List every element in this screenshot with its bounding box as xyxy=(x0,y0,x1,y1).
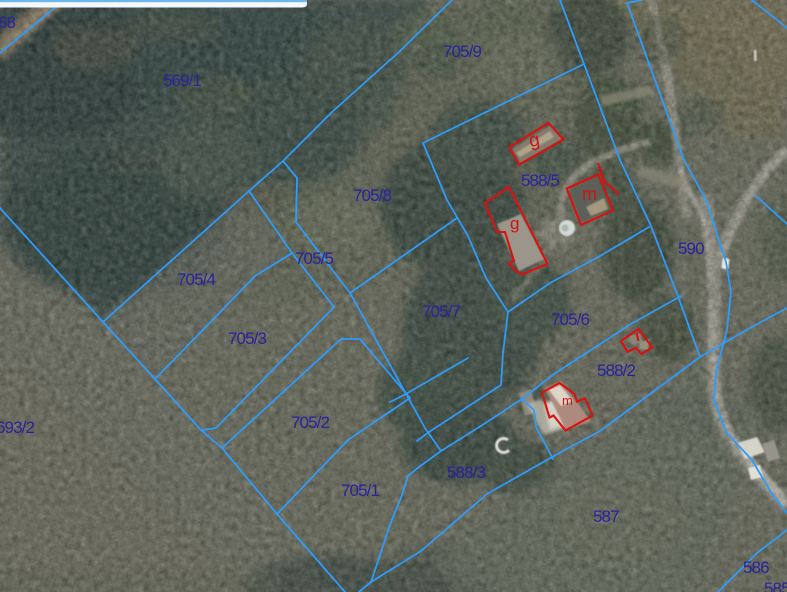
svg-text:705/2: 705/2 xyxy=(291,413,329,432)
svg-text:588/5: 588/5 xyxy=(521,171,559,190)
svg-text:705/7: 705/7 xyxy=(422,302,460,321)
svg-text:588/2: 588/2 xyxy=(597,361,635,380)
svg-text:705/5: 705/5 xyxy=(295,249,333,268)
svg-text:705/8: 705/8 xyxy=(353,186,391,205)
svg-text:m: m xyxy=(582,184,597,204)
svg-text:68: 68 xyxy=(0,13,16,32)
svg-text:590: 590 xyxy=(678,239,704,258)
svg-text:569/1: 569/1 xyxy=(163,71,201,90)
svg-text:693/2: 693/2 xyxy=(0,418,34,437)
svg-text:705/6: 705/6 xyxy=(551,310,589,329)
svg-text:585: 585 xyxy=(764,579,787,592)
svg-text:705/1: 705/1 xyxy=(341,481,379,500)
svg-text:m: m xyxy=(562,393,573,408)
svg-text:587: 587 xyxy=(593,507,619,526)
svg-text:586: 586 xyxy=(743,558,769,577)
svg-text:705/9: 705/9 xyxy=(443,42,481,61)
svg-text:705/3: 705/3 xyxy=(228,329,266,348)
svg-text:705/4: 705/4 xyxy=(177,270,215,289)
svg-text:g: g xyxy=(510,214,519,233)
svg-text:588/3: 588/3 xyxy=(447,463,485,482)
